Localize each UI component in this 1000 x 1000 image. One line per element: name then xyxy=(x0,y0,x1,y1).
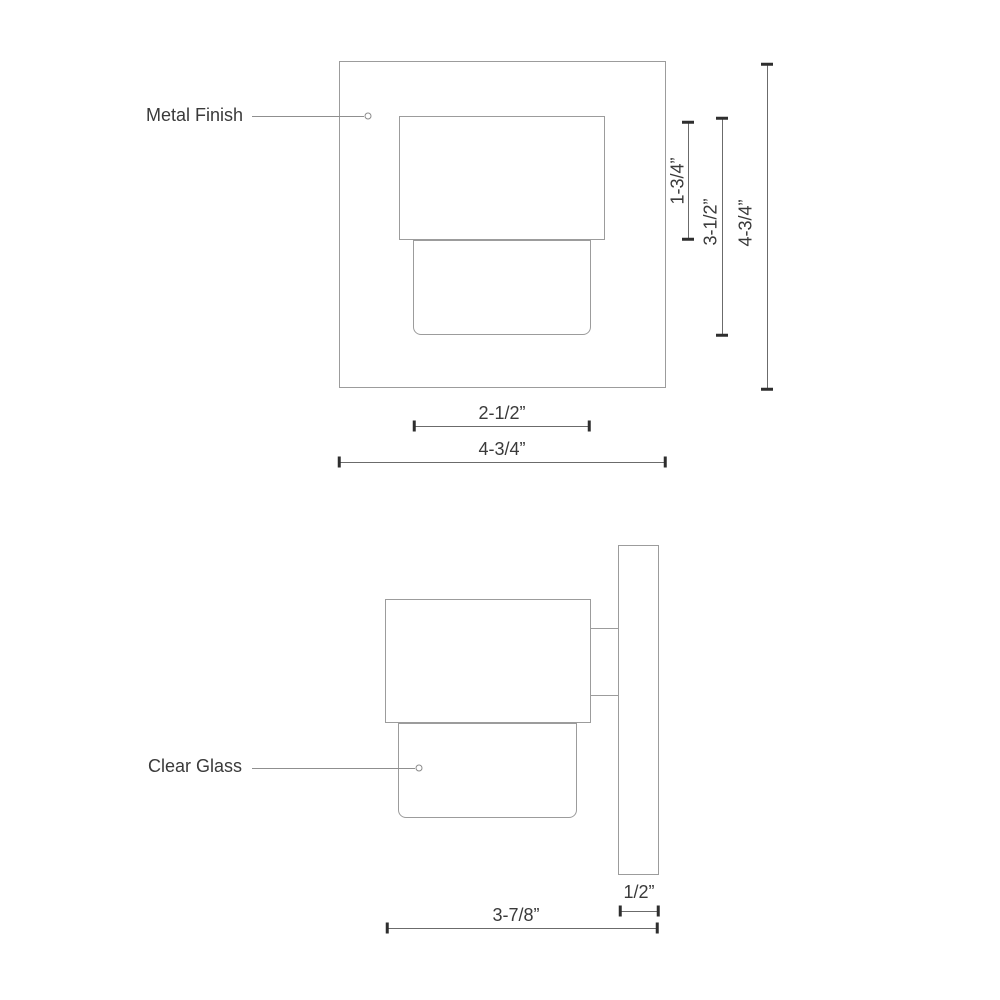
front-glass-outline xyxy=(413,240,591,335)
dim-tick xyxy=(682,121,694,124)
dim-line-body-height xyxy=(722,118,723,335)
dim-tick xyxy=(338,457,341,468)
dim-tick xyxy=(657,906,660,917)
dim-line-total-depth xyxy=(387,928,657,929)
dim-label-body-height: 3-1/2” xyxy=(701,198,722,245)
clear-glass-leader-dot xyxy=(416,765,423,772)
dim-label-plate-depth: 1/2” xyxy=(623,882,654,903)
dim-tick xyxy=(386,923,389,934)
dim-tick xyxy=(716,117,728,120)
dim-label-backplate-height: 4-3/4” xyxy=(736,199,757,246)
dim-tick xyxy=(413,421,416,432)
metal-finish-leader-dot xyxy=(365,113,372,120)
dim-line-plate-depth xyxy=(620,911,658,912)
side-arm-top-line xyxy=(591,628,618,629)
clear-glass-label: Clear Glass xyxy=(148,756,242,777)
side-backplate-outline xyxy=(618,545,659,875)
dim-label-housing-height: 1-3/4” xyxy=(668,157,689,204)
dim-line-glass-width xyxy=(414,426,589,427)
metal-finish-leader-line xyxy=(252,116,364,117)
dim-tick xyxy=(716,334,728,337)
dim-tick xyxy=(619,906,622,917)
dim-tick xyxy=(664,457,667,468)
side-glass-outline xyxy=(398,723,577,818)
dim-label-total-depth: 3-7/8” xyxy=(492,905,539,926)
dimension-drawing-canvas: Metal Finish 1-3/4” 3-1/2” 4-3/4” 2-1/2”… xyxy=(0,0,1000,1000)
dim-label-backplate-width: 4-3/4” xyxy=(478,439,525,460)
dim-tick xyxy=(761,388,773,391)
metal-finish-label: Metal Finish xyxy=(146,105,243,126)
clear-glass-leader-line xyxy=(252,768,415,769)
dim-tick xyxy=(682,238,694,241)
side-housing-outline xyxy=(385,599,591,723)
side-arm-bottom-line xyxy=(591,695,618,696)
dim-tick xyxy=(588,421,591,432)
dim-tick xyxy=(761,63,773,66)
dim-tick xyxy=(656,923,659,934)
dim-line-backplate-width xyxy=(339,462,665,463)
dim-label-glass-width: 2-1/2” xyxy=(478,403,525,424)
front-housing-outline xyxy=(399,116,605,240)
dim-line-backplate-height xyxy=(767,64,768,389)
